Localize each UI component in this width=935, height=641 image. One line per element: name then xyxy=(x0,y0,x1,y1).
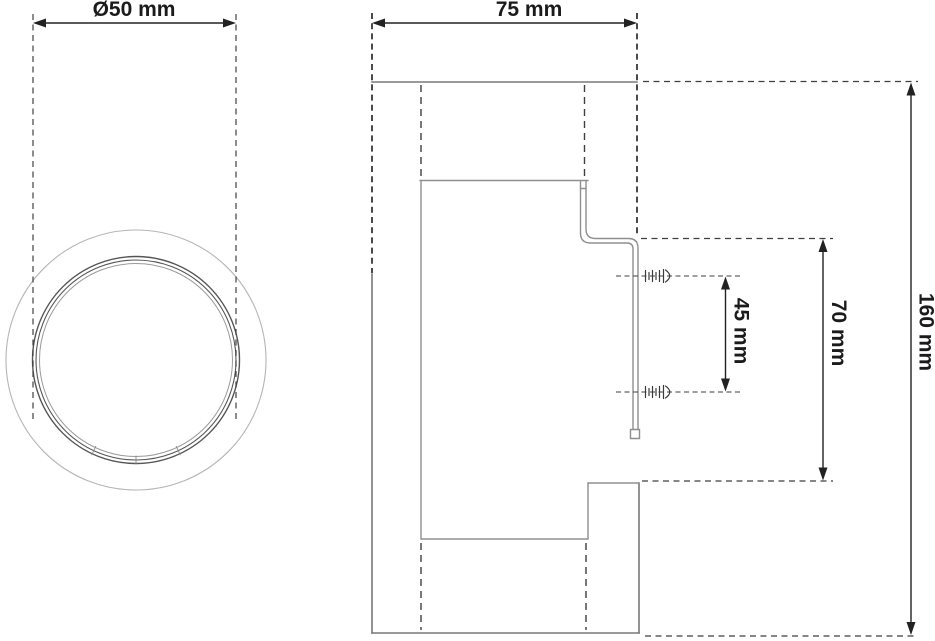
bracket-height-label: 70 mm xyxy=(827,300,850,367)
mounting-screw-top xyxy=(616,270,740,283)
dimension-diameter: Ø50 mm xyxy=(33,0,236,420)
screw-icon xyxy=(646,270,670,283)
dimension-depth: 75 mm xyxy=(372,0,637,28)
arrow-down-icon xyxy=(819,468,828,481)
front-tube-inner-circle xyxy=(40,264,233,457)
arrow-right-icon xyxy=(223,19,236,28)
overall-height-label: 160 mm xyxy=(915,293,935,371)
technical-drawing-canvas: Ø50 mm xyxy=(0,0,935,641)
arrow-left-icon xyxy=(372,19,385,28)
depth-label: 75 mm xyxy=(496,0,563,21)
bracket-outer-edge xyxy=(586,181,638,430)
diameter-label: Ø50 mm xyxy=(93,0,176,21)
front-view xyxy=(6,230,266,490)
arrow-right-icon xyxy=(624,19,637,28)
front-tube-mid-circle xyxy=(36,260,236,460)
front-tube-outer-circle xyxy=(33,257,240,464)
arrow-up-icon xyxy=(819,239,828,252)
arrow-up-icon xyxy=(721,277,730,290)
screw-icon xyxy=(646,386,670,399)
screw-spacing-label: 45 mm xyxy=(730,298,753,365)
arrow-down-icon xyxy=(907,622,916,635)
dimension-overall-height: 160 mm xyxy=(643,82,935,637)
dimension-screw-spacing: 45 mm xyxy=(721,277,753,392)
side-view xyxy=(372,13,640,633)
arrow-up-icon xyxy=(907,83,916,96)
arrow-left-icon xyxy=(33,19,46,28)
front-outer-rim-circle xyxy=(6,230,266,490)
arrow-down-icon xyxy=(721,379,730,392)
drawing-stage: Ø50 mm xyxy=(0,0,935,641)
mounting-screw-bottom xyxy=(616,386,740,399)
bracket-end-cap xyxy=(631,430,640,439)
